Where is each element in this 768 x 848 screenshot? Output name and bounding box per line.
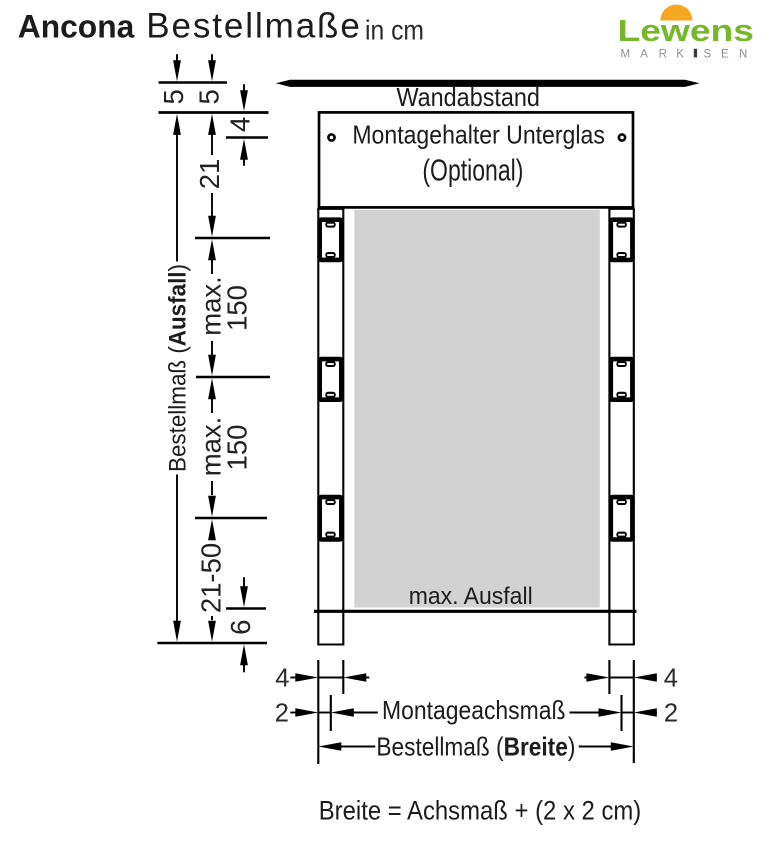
- svg-text:6: 6: [225, 620, 256, 635]
- svg-text:2: 2: [664, 700, 678, 728]
- svg-text:in cm: in cm: [365, 14, 424, 45]
- svg-text:2: 2: [275, 700, 289, 728]
- svg-text:N: N: [739, 48, 747, 60]
- svg-text:Wandabstand: Wandabstand: [396, 82, 540, 112]
- svg-text:21: 21: [194, 159, 225, 190]
- svg-text:A: A: [640, 48, 648, 60]
- svg-text:Montagehalter Unterglas: Montagehalter Unterglas: [352, 120, 605, 150]
- svg-text:5: 5: [193, 89, 224, 104]
- svg-text:4: 4: [225, 117, 256, 132]
- svg-text:K: K: [676, 48, 684, 60]
- svg-text:4: 4: [275, 665, 289, 693]
- svg-text:21-50: 21-50: [196, 543, 227, 613]
- svg-text:5: 5: [158, 89, 189, 104]
- svg-text:Bestellmaß (Breite): Bestellmaß (Breite): [376, 731, 575, 761]
- svg-text:150: 150: [221, 425, 252, 471]
- svg-text:(Optional): (Optional): [422, 153, 523, 188]
- svg-text:Ancona: Ancona: [18, 9, 135, 45]
- svg-text:E: E: [721, 48, 729, 60]
- svg-text:Montageachsmaß: Montageachsmaß: [382, 695, 566, 725]
- svg-text:M: M: [621, 48, 631, 60]
- svg-text:S: S: [704, 48, 712, 60]
- svg-text:max. Ausfall: max. Ausfall: [409, 583, 533, 610]
- svg-text:Bestellmaß (Ausfall): Bestellmaß (Ausfall): [165, 264, 192, 472]
- svg-text:Breite = Achsmaß + (2 x 2 cm): Breite = Achsmaß + (2 x 2 cm): [319, 795, 642, 825]
- svg-text:R: R: [659, 48, 667, 60]
- svg-text:4: 4: [664, 665, 678, 693]
- svg-text:150: 150: [221, 285, 252, 331]
- svg-text:Bestellmaße: Bestellmaße: [146, 7, 359, 46]
- svg-text:Lewens: Lewens: [618, 13, 755, 48]
